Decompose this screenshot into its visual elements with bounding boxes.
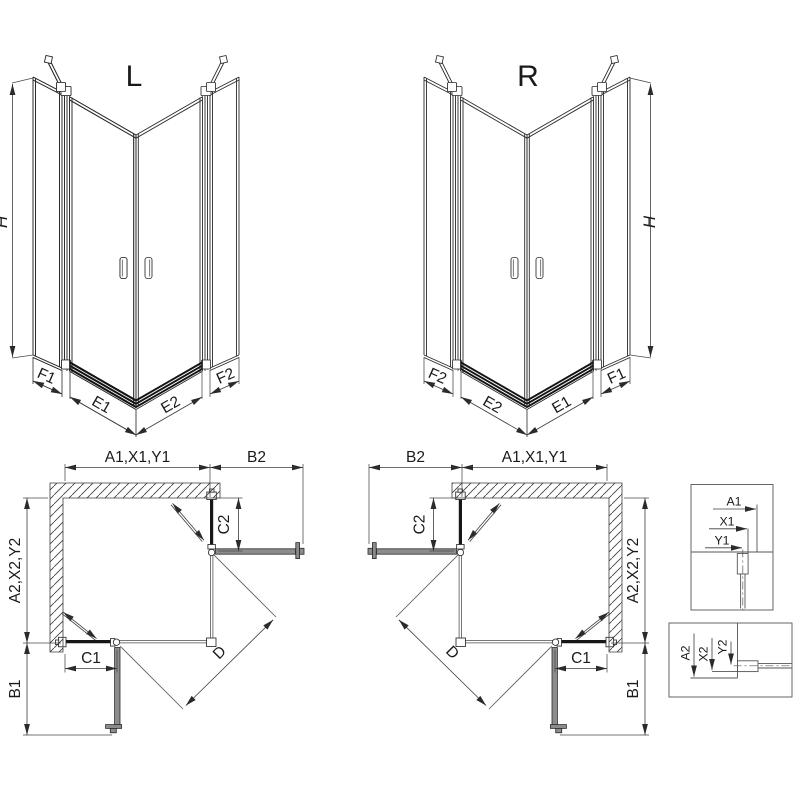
dim-label-b1-left: B1 [7,680,24,699]
open-door-right-handle [296,543,300,559]
door-open-swing-edges [120,554,276,709]
dim-label-height-left: H [0,215,11,228]
dim-label-c1-left: C1 [81,650,101,667]
wall-hatch-top-right-plan [452,483,622,498]
height-dim-extensions [12,78,33,358]
dim-label-e1-left: E1 [89,393,114,417]
dim-label-f1-left: F1 [35,365,58,388]
open-door-right-handle-nub [300,548,304,554]
dim-label-depth-side-left: A2,X2,Y2 [7,538,24,604]
open-door-bottom-handle-nub [110,728,116,732]
variant-title-right: R [517,60,539,93]
drawing-canvas: L H F1 E1 E2 F2 R H F2 E2 E1 F1 [0,0,800,800]
dim-label-f2-left: F2 [214,365,237,388]
swing-arrow-top-shaft [171,505,202,542]
plan-dim-extension-lines [23,464,303,735]
dim-label-b1-right: B1 [625,680,642,699]
open-door-right [216,549,296,554]
detail-a1-reference-lines [748,505,757,554]
pivot-hinge-right [208,545,216,550]
dim-label-e2-right: E2 [480,393,505,417]
dim-label-width-top-right: A1,X1,Y1 [502,449,568,466]
swing-arrow-top [173,503,204,540]
swing-arrow-bottom [63,612,96,638]
detail-box-a2: A2 X2 Y2 [669,623,792,697]
fixed-glass-segments-plan [65,498,212,642]
shower-enclosure-technical-drawing: L H F1 E1 E2 F2 R H F2 E2 E1 F1 [0,0,800,800]
detail-label-a2: A2 [679,645,693,660]
dim-label-e2-left: E2 [158,393,183,417]
dim-label-height-right: H [640,215,659,228]
diagonal-entry-dim-line [186,620,273,706]
pivot-point-bottom [113,639,119,645]
detail-a2-wall-profile [738,661,759,672]
dim-label-width-top-left: A1,X1,Y1 [105,449,171,466]
detail-box-a1: A1 X1 Y1 [691,485,773,611]
dim-label-f2-right: F2 [426,365,449,388]
plan-view-geometry [23,464,304,735]
detail-label-a1: A1 [726,495,741,509]
detail-label-y1: Y1 [714,534,729,548]
detail-a2-reference-lines [691,672,738,678]
swing-arrow-bottom-shaft [62,614,95,640]
dim-label-b2-right: B2 [406,449,425,466]
dim-label-depth-side-right: A2,X2,Y2 [625,538,642,604]
detail-label-y2: Y2 [716,639,730,654]
dim-label-c1-right: C1 [571,650,591,667]
door-glass-edges [70,96,137,409]
variant-title-left: L [126,60,143,93]
detail-label-x2: X2 [697,646,711,661]
dim-label-e1-right: E1 [549,393,574,417]
dim-label-c2-left: C2 [216,515,233,535]
threshold-rails-plan [119,551,213,643]
dim-label-c2-right: C2 [412,515,429,535]
open-door-bottom-handle [106,725,122,729]
plan-left-walls [50,483,220,652]
dim-label-f1-right: F1 [605,365,628,388]
plan-view-right-geometry [368,464,649,735]
plan-right-walls [452,483,622,652]
wall-hatch-top-left-plan [50,483,220,498]
wall-outline-right-plan [452,483,622,652]
wall-hatch-side-left-plan [50,498,63,652]
detail-label-x1: X1 [719,515,734,529]
wall-outline-left-plan [50,483,220,652]
fixed-panel-glass-edges [33,77,62,371]
dim-label-b2-left: B2 [247,449,266,466]
wall-hatch-side-right-plan [609,498,622,652]
